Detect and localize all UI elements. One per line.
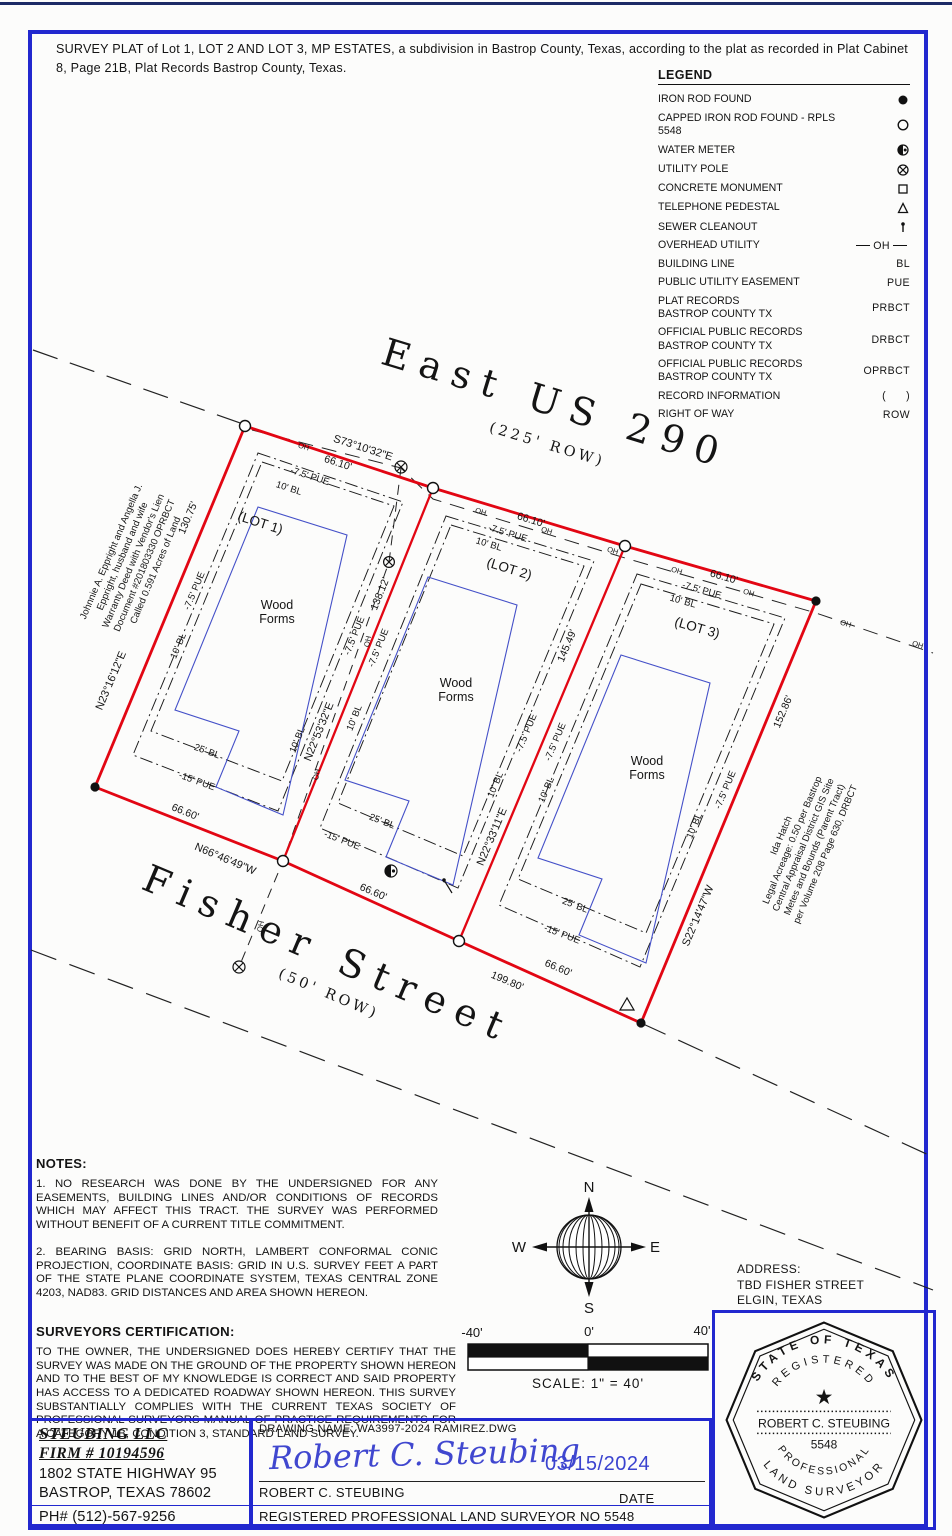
us290-row-line-west [33, 350, 243, 424]
scale-center-label: 0' [584, 1324, 594, 1339]
lot2-bl-rear-label: 25' BL [367, 812, 396, 832]
legend: LEGEND IRON ROD FOUND CAPPED IRON ROD FO… [658, 68, 910, 424]
lot2-label: (LOT 2) [485, 555, 534, 583]
scale-left-label: -40' [461, 1325, 482, 1340]
lot3-rear-dim: 66.60' [543, 957, 574, 979]
date-label: DATE [619, 1491, 655, 1506]
address-heading: ADDRESS: [737, 1262, 864, 1278]
lot2-rear-dim: 66.60' [358, 881, 389, 903]
east-adjoiner-note: Ida Hatch Legal Acreage: 0.50 per Bastro… [747, 765, 860, 926]
note-2: 2. BEARING BASIS: GRID NORTH, LAMBERT CO… [36, 1246, 438, 1301]
legend-row-utility-pole: UTILITY POLE [658, 160, 910, 179]
concrete-monument-icon [896, 182, 910, 196]
svg-text:REGISTERED: REGISTERED [770, 1353, 878, 1388]
firm-title-block: STEUBING LLC FIRM # 10194596 1802 STATE … [28, 1418, 252, 1530]
seal-name: ROBERT C. STEUBING [758, 1417, 890, 1431]
firm-name: STEUBING LLC [39, 1424, 241, 1444]
fisher-frontage-extension [641, 1023, 933, 1157]
seal-star: ★ [815, 1386, 834, 1409]
iron-rod-marker [90, 782, 99, 791]
interior2-pue-west-label: -7.5' PUE [514, 712, 540, 753]
legend-row-building-line: BUILDING LINE BL [658, 255, 910, 273]
telephone-pedestal-icon [896, 201, 910, 215]
oh-label: OH [362, 635, 373, 648]
scale-caption: SCALE: 1" = 40' [532, 1376, 644, 1391]
interior1-bl-east-label: 10' BL [345, 704, 365, 733]
firm-address-line2: BASTROP, TEXAS 78602 [39, 1485, 241, 1501]
lot3-bl-rear-label: 25' BL [560, 896, 589, 916]
lot3-wood-forms-label: Forms [629, 768, 664, 782]
oh-label: OH [606, 545, 619, 557]
oh-label: OH [474, 506, 487, 518]
notes-heading: NOTES: [36, 1156, 87, 1171]
signature-block: DRAWING NAME: WA3997-2024 RAMIREZ.DWG Ro… [250, 1418, 712, 1530]
legend-row-telephone-pedestal: TELEPHONE PEDESTAL [658, 198, 910, 217]
lot1-rear-dim: 66.60' [170, 801, 201, 823]
lot3-label: (LOT 3) [673, 614, 722, 641]
surveyor-name: ROBERT C. STEUBING [259, 1485, 405, 1500]
lot1-wood-forms-label: Forms [259, 612, 294, 626]
legend-label: OFFICIAL PUBLIC RECORDS BASTROP COUNTY T… [658, 326, 802, 352]
legend-row-row: RIGHT OF WAY ROW [658, 405, 910, 423]
legend-row-oprbct: OFFICIAL PUBLIC RECORDS BASTROP COUNTY T… [658, 355, 910, 387]
legend-row-prbct: PLAT RECORDS BASTROP COUNTY TX PRBCT [658, 292, 910, 324]
street-name: Fisher Street [136, 856, 520, 1052]
firm-number: FIRM # 10194596 [39, 1445, 241, 1463]
oh-label: OH [839, 618, 852, 630]
registration-line: REGISTERED PROFESSIONAL LAND SURVEYOR NO… [259, 1509, 634, 1524]
legend-label: OVERHEAD UTILITY [658, 239, 760, 252]
west-adjoiner-note: Johnnie A. Eppright and Angella J. Eppri… [78, 482, 189, 640]
legend-row-water-meter: WATER METER [658, 141, 910, 160]
capped-iron-rod-icon [896, 118, 910, 132]
lot-line-2-3 [459, 546, 625, 941]
interior2-dim: 145.49' [555, 628, 579, 664]
capped-iron-rod-marker [620, 541, 631, 552]
legend-label: PLAT RECORDS BASTROP COUNTY TX [658, 295, 772, 321]
lot1-wood-forms-label: Wood [261, 598, 293, 612]
lot2-wood-forms-label: Wood [440, 676, 472, 690]
oh-label: OH [742, 587, 755, 599]
legend-label: WATER METER [658, 144, 735, 157]
seal-number: 5548 [811, 1438, 838, 1452]
surveyor-signature: Robert C. Steubing [269, 1431, 581, 1477]
capped-iron-rod-marker [278, 856, 289, 867]
legend-label: SEWER CLEANOUT [658, 221, 757, 234]
water-meter-symbol [385, 865, 397, 877]
legend-label: CAPPED IRON ROD FOUND - RPLS 5548 [658, 112, 853, 138]
interior1-dim: 138.12' [368, 576, 392, 612]
note-1: 1. NO RESEARCH WAS DONE BY THE UNDERSIGN… [36, 1178, 438, 1233]
iron-rod-marker [636, 1018, 645, 1027]
legend-title: LEGEND [658, 68, 910, 82]
lot2-bl-front-label: 10' BL [474, 535, 503, 553]
overhead-utility-icon: OH [850, 240, 910, 252]
legend-row-overhead-utility: OVERHEAD UTILITY OH [658, 237, 910, 255]
oh-label: OH [540, 525, 553, 537]
water-meter-icon [896, 143, 910, 157]
certification-heading: SURVEYORS CERTIFICATION: [36, 1324, 235, 1339]
seal-box: STATE OF TEXAS REGISTERED ★ ROBERT C. ST… [712, 1310, 936, 1530]
legend-rule [658, 84, 910, 85]
utility-pole-icon [896, 163, 910, 177]
legend-label: UTILITY POLE [658, 163, 728, 176]
surveyor-seal: STATE OF TEXAS REGISTERED ★ ROBERT C. ST… [715, 1313, 933, 1527]
legend-row-capped-iron-rod: CAPPED IRON ROD FOUND - RPLS 5548 [658, 109, 910, 141]
interior2-pue-east-label: -7.5' PUE [543, 721, 569, 762]
legend-row-concrete-monument: CONCRETE MONUMENT [658, 179, 910, 198]
signature-divider [253, 1505, 709, 1506]
legend-label: CONCRETE MONUMENT [658, 182, 783, 195]
legend-label: PUBLIC UTILITY EASEMENT [658, 276, 800, 289]
capped-iron-rod-marker [454, 936, 465, 947]
utility-pole-symbol [233, 961, 245, 973]
east-bl-label: 10' BL [684, 812, 705, 841]
legend-abbr: PRBCT [850, 302, 910, 314]
oh-label: OH [311, 768, 322, 781]
survey-plat-page: SURVEY PLAT of Lot 1, LOT 2 AND LOT 3, M… [0, 0, 952, 1536]
lot-line-1-2 [283, 488, 433, 861]
legend-label: RIGHT OF WAY [658, 408, 734, 421]
firm-phone: PH# (512)-567-9256 [39, 1509, 241, 1525]
telephone-pedestal-symbol [620, 998, 634, 1010]
lot1-bl-front-label: 10' BL [274, 479, 303, 498]
seal-arc-registered: REGISTERED [770, 1353, 878, 1388]
interior2-bl-west-label: 10' BL [485, 771, 506, 800]
capped-iron-rod-marker [240, 421, 251, 432]
address-line2: ELGIN, TEXAS [737, 1293, 864, 1309]
total-frontage-dim: 199.80' [489, 969, 525, 993]
legend-row-pue: PUBLIC UTILITY EASEMENT PUE [658, 274, 910, 292]
legend-abbr: BL [850, 258, 910, 270]
legend-label: RECORD INFORMATION [658, 390, 780, 403]
iron-rod-found-icon [896, 93, 910, 107]
oh-label: OH [911, 639, 924, 651]
legend-row-sewer-cleanout: SEWER CLEANOUT [658, 218, 910, 237]
oh-label: OH [670, 565, 683, 577]
compass-w: W [512, 1239, 527, 1256]
address-line1: TBD FISHER STREET [737, 1278, 864, 1294]
legend-label: TELEPHONE PEDESTAL [658, 201, 780, 214]
capped-iron-rod-marker [428, 483, 439, 494]
west-pue-label: -7.5' PUE [182, 570, 208, 611]
compass-n: N [584, 1179, 595, 1196]
lot1-front-dim: 66.10' [323, 453, 354, 473]
firm-address-line1: 1802 STATE HIGHWAY 95 [39, 1466, 241, 1482]
west-bearing: N23°16'12"E [94, 650, 129, 712]
legend-row-drbct: OFFICIAL PUBLIC RECORDS BASTROP COUNTY T… [658, 324, 910, 356]
iron-rod-marker [811, 596, 820, 605]
legend-abbr: OH [873, 240, 890, 252]
lot3-bl-front-label: 10' BL [668, 593, 697, 611]
oh-label: OH [297, 441, 310, 453]
lot3-pue-rear-label: -15' PUE [542, 923, 581, 947]
signature-line [259, 1481, 705, 1482]
legend-label: BUILDING LINE [658, 258, 735, 271]
legend-abbr: DRBCT [850, 334, 910, 346]
scale-bar: -40' 0' 40' SCALE: 1" = 40' [461, 1323, 710, 1391]
site-address: ADDRESS: TBD FISHER STREET ELGIN, TEXAS [737, 1262, 864, 1309]
legend-abbr: ( ) [850, 390, 910, 402]
lot1-bl-rear-label: 25' BL [192, 742, 221, 761]
compass-e: E [650, 1239, 660, 1256]
compass-rose: N S W E [512, 1179, 660, 1317]
signature-date: 03/15/2024 [545, 1453, 650, 1476]
west-side-dim: 130.75' [176, 500, 200, 536]
legend-abbr: PUE [850, 277, 910, 289]
sewer-cleanout-icon [896, 220, 910, 234]
boundary-east [641, 601, 816, 1023]
legend-label: IRON ROD FOUND [658, 93, 752, 106]
legend-abbr: ROW [850, 409, 910, 421]
lot2-wood-forms-label: Forms [438, 690, 473, 704]
legend-row-record-info: RECORD INFORMATION ( ) [658, 387, 910, 405]
east-pue-label: -7.5' PUE [713, 769, 739, 810]
interior2-bl-east-label: 10' BL [536, 776, 557, 805]
scale-right-label: 40' [694, 1323, 711, 1338]
compass-s: S [584, 1300, 594, 1317]
lot3-wood-forms-label: Wood [631, 754, 663, 768]
legend-row-iron-rod: IRON ROD FOUND [658, 90, 910, 109]
firm-divider [31, 1505, 249, 1506]
legend-label: OFFICIAL PUBLIC RECORDS BASTROP COUNTY T… [658, 358, 802, 384]
legend-abbr: OPRBCT [850, 365, 910, 377]
lot2-pue-rear-label: -15' PUE [322, 829, 361, 853]
lot1-pue-rear-label: -15' PUE [177, 770, 216, 793]
sewer-cleanout-symbol [442, 878, 452, 893]
